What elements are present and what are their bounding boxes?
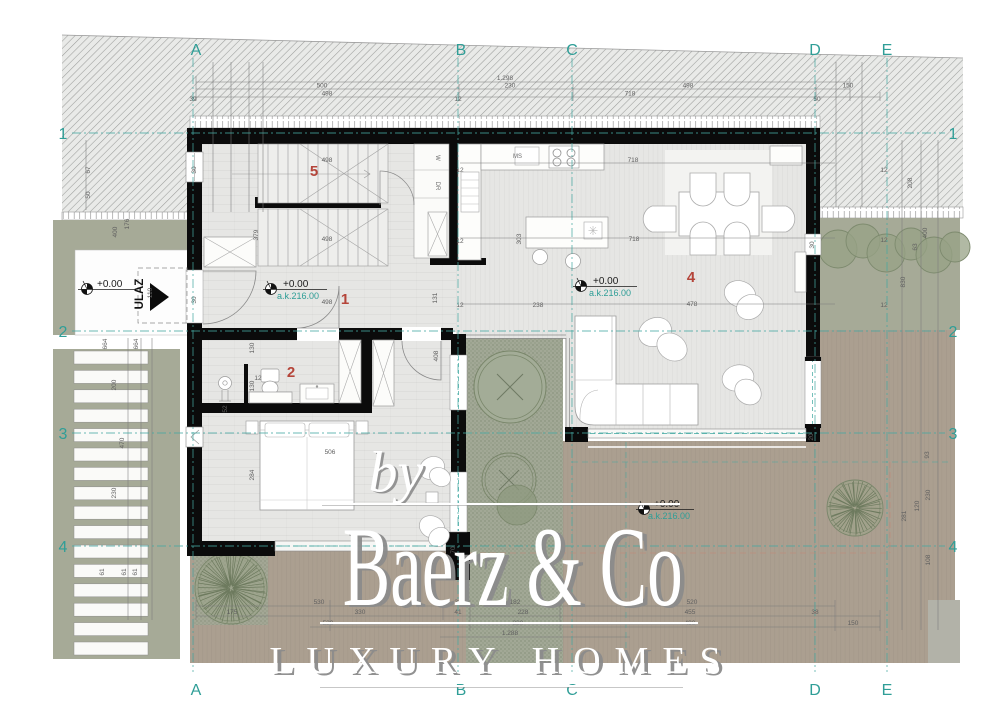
- svg-text:208: 208: [907, 177, 914, 188]
- svg-text:a.k.216.00: a.k.216.00: [589, 288, 631, 298]
- svg-text:230: 230: [111, 487, 118, 498]
- svg-text:61: 61: [99, 568, 106, 576]
- svg-text:+0.00: +0.00: [283, 279, 309, 290]
- svg-text:2: 2: [59, 324, 68, 341]
- svg-text:470: 470: [119, 437, 126, 448]
- svg-text:2: 2: [949, 324, 958, 341]
- svg-text:718: 718: [625, 91, 636, 98]
- svg-text:LUXURY HOMES: LUXURY HOMES: [269, 640, 734, 682]
- svg-text:52: 52: [222, 405, 229, 413]
- svg-text:230: 230: [925, 489, 932, 500]
- svg-text:498: 498: [322, 236, 333, 243]
- svg-text:C: C: [566, 42, 578, 59]
- svg-text:12: 12: [254, 375, 262, 382]
- svg-text:+0.00: +0.00: [97, 279, 123, 290]
- svg-text:C: C: [566, 682, 578, 699]
- svg-text:A: A: [191, 42, 202, 59]
- svg-text:3: 3: [59, 426, 68, 443]
- svg-text:93: 93: [924, 451, 931, 459]
- svg-text:478: 478: [687, 301, 698, 308]
- svg-text:1: 1: [341, 291, 349, 308]
- svg-text:150: 150: [843, 83, 854, 90]
- svg-text:4: 4: [687, 269, 696, 286]
- svg-text:498: 498: [322, 157, 333, 164]
- svg-text:67: 67: [85, 166, 92, 174]
- svg-text:3: 3: [949, 426, 958, 443]
- svg-text:61: 61: [132, 568, 139, 576]
- svg-text:2: 2: [287, 364, 295, 381]
- svg-text:E: E: [882, 42, 893, 59]
- svg-text:A: A: [191, 682, 202, 699]
- svg-text:120: 120: [914, 500, 921, 511]
- svg-text:12: 12: [456, 167, 464, 174]
- svg-text:238: 238: [533, 302, 544, 309]
- svg-text:498: 498: [322, 91, 333, 98]
- svg-text:284: 284: [249, 469, 256, 480]
- svg-text:D: D: [809, 42, 821, 59]
- svg-text:50: 50: [813, 96, 821, 103]
- svg-text:63: 63: [912, 243, 919, 251]
- svg-text:303: 303: [516, 233, 523, 244]
- svg-text:D: D: [809, 682, 821, 699]
- svg-text:B: B: [456, 682, 467, 699]
- svg-text:400: 400: [922, 227, 929, 238]
- svg-text:150: 150: [848, 620, 859, 627]
- svg-text:E: E: [882, 682, 893, 699]
- svg-text:281: 281: [901, 510, 908, 521]
- svg-text:506: 506: [325, 449, 336, 456]
- svg-text:a.k.216.00: a.k.216.00: [277, 291, 319, 301]
- svg-text:664: 664: [133, 338, 140, 349]
- svg-text:20: 20: [808, 433, 815, 441]
- svg-text:50: 50: [85, 191, 92, 199]
- svg-text:B: B: [456, 42, 467, 59]
- svg-text:1: 1: [59, 126, 68, 143]
- svg-text:175: 175: [227, 609, 238, 616]
- svg-text:MS: MS: [513, 154, 522, 160]
- svg-text:4: 4: [59, 539, 68, 556]
- svg-text:400: 400: [112, 226, 119, 237]
- svg-text:12: 12: [456, 302, 464, 309]
- svg-text:30: 30: [191, 296, 198, 304]
- svg-text:1: 1: [949, 126, 958, 143]
- svg-text:30: 30: [191, 166, 198, 174]
- svg-text:108: 108: [925, 554, 932, 565]
- svg-text:200: 200: [111, 379, 118, 390]
- svg-text:61: 61: [121, 568, 128, 576]
- svg-text:500: 500: [317, 83, 328, 90]
- svg-text:230: 230: [505, 83, 516, 90]
- svg-text:379: 379: [253, 229, 260, 240]
- svg-text:520: 520: [687, 599, 698, 606]
- svg-text:by: by: [369, 440, 424, 505]
- svg-text:718: 718: [629, 236, 640, 243]
- svg-text:830: 830: [900, 276, 907, 287]
- svg-text:176: 176: [124, 218, 131, 229]
- svg-text:498: 498: [683, 83, 694, 90]
- svg-text:12: 12: [456, 238, 464, 245]
- svg-text:4: 4: [949, 539, 958, 556]
- svg-text:ULAZ: ULAZ: [134, 279, 146, 310]
- svg-text:110: 110: [147, 287, 154, 298]
- svg-text:+0.00: +0.00: [593, 276, 619, 287]
- svg-text:1.298: 1.298: [497, 75, 514, 82]
- svg-text:130: 130: [249, 342, 256, 353]
- svg-text:W: W: [434, 155, 440, 161]
- svg-text:408: 408: [433, 350, 440, 361]
- svg-text:5: 5: [310, 163, 318, 180]
- svg-text:Baerz & Co: Baerz & Co: [343, 506, 683, 630]
- svg-text:530: 530: [314, 599, 325, 606]
- svg-text:498: 498: [322, 299, 333, 306]
- svg-text:664: 664: [102, 338, 109, 349]
- svg-text:DR: DR: [434, 182, 440, 191]
- svg-text:131: 131: [432, 292, 439, 303]
